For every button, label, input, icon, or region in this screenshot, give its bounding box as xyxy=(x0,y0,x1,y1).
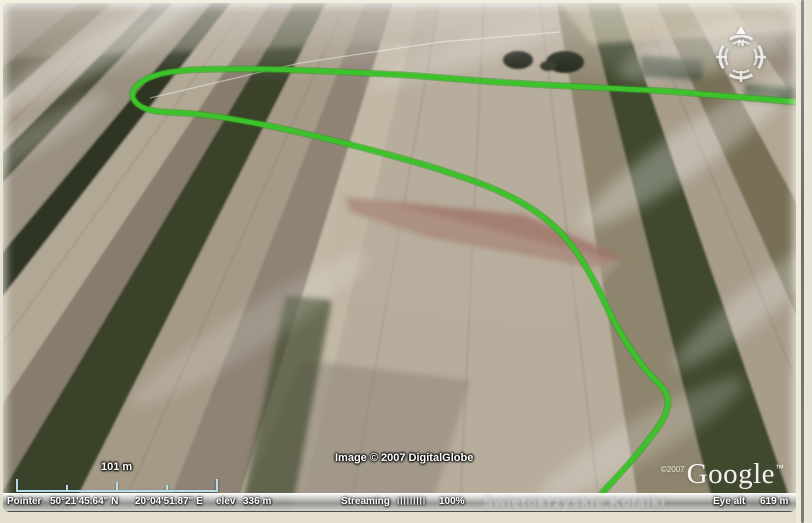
google-earth-window: N 101 m Image © 2007 DigitalGlobe ©2007 … xyxy=(0,0,812,523)
compass-ticks xyxy=(716,57,766,82)
scale-label: 101 m xyxy=(101,461,132,473)
eye-altitude-label: Eye alt xyxy=(713,496,745,507)
streaming-percent: 100% xyxy=(439,496,465,507)
north-arrow-icon xyxy=(736,26,746,34)
elevation-value: 336 m xyxy=(243,496,271,507)
streaming-label: Streaming xyxy=(341,496,390,507)
eye-altitude-value: 619 m xyxy=(760,496,788,507)
window-edge-line xyxy=(801,0,804,523)
elevation-label: elev xyxy=(216,496,235,507)
logo-wordmark: Google xyxy=(687,460,775,488)
pointer-label: Pointer xyxy=(7,496,41,507)
aerial-imagery xyxy=(3,3,796,512)
imagery-attribution: Image © 2007 DigitalGlobe xyxy=(335,452,473,464)
window-right-border xyxy=(796,0,812,523)
streaming-bars: ||||||||| xyxy=(397,496,426,505)
google-logo: ©2007 Google ™ xyxy=(661,460,784,488)
horizon-haze xyxy=(3,3,796,83)
compass-navigation-control[interactable]: N xyxy=(708,24,774,90)
status-bar: Pointer 50°21'45.64" N 20°04'51.87" E el… xyxy=(3,493,796,512)
logo-copyright: ©2007 xyxy=(661,465,685,474)
compass-north-label: N xyxy=(738,38,745,48)
pointer-longitude: 20°04'51.87" E xyxy=(135,496,203,507)
logo-trademark: ™ xyxy=(775,463,784,473)
map-viewport[interactable]: N 101 m Image © 2007 DigitalGlobe ©2007 … xyxy=(3,3,796,512)
scale-bar: 101 m xyxy=(13,461,223,495)
pointer-latitude: 50°21'45.64" N xyxy=(50,496,118,507)
